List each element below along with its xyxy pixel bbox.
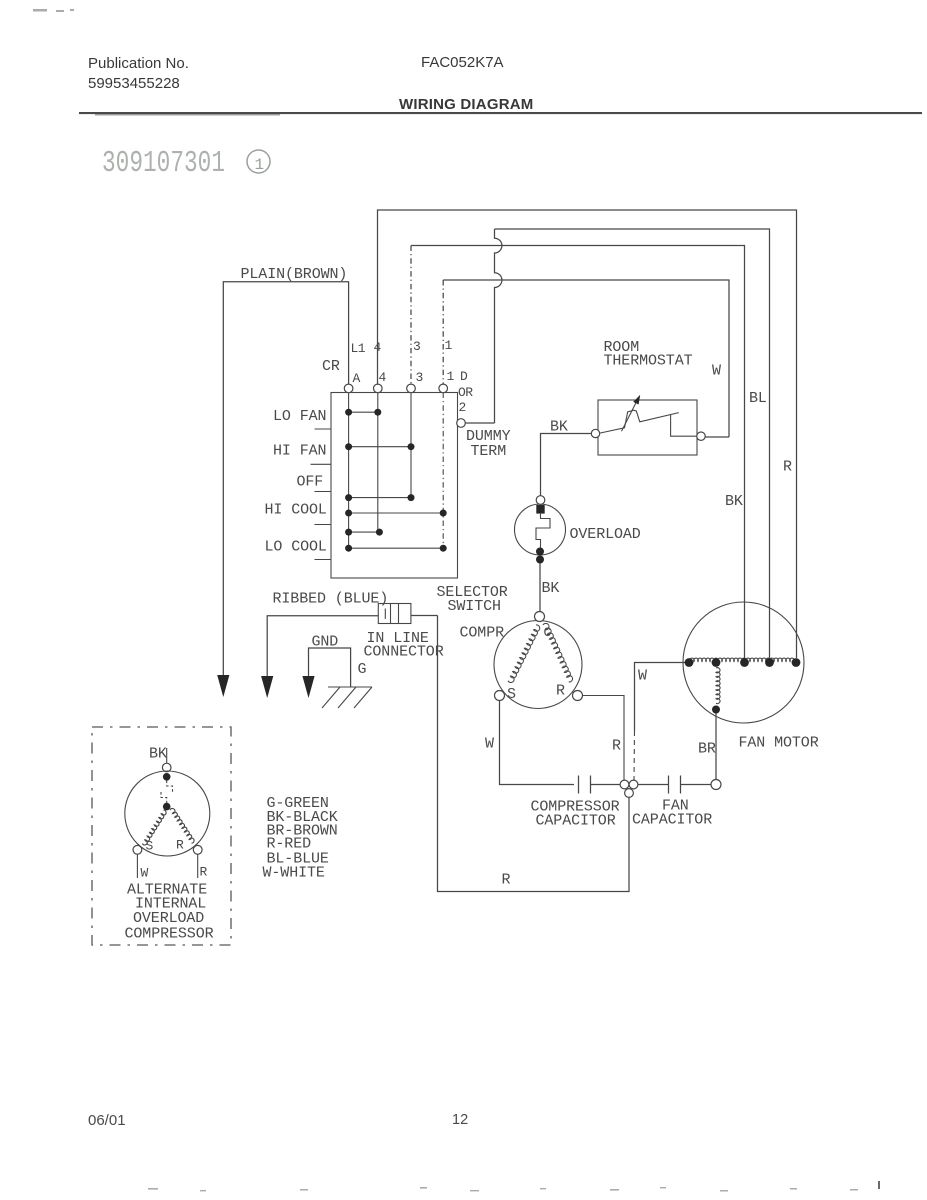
svg-text:COMPR: COMPR [460, 625, 505, 642]
svg-text:W: W [141, 866, 149, 881]
svg-text:OVERLOAD: OVERLOAD [133, 910, 204, 927]
svg-text:FAC052K7A: FAC052K7A [421, 54, 504, 71]
svg-text:12: 12 [452, 1112, 468, 1128]
svg-text:OFF: OFF [297, 474, 324, 491]
svg-text:06/01: 06/01 [88, 1112, 126, 1129]
svg-text:Publication No.: Publication No. [88, 55, 189, 72]
svg-text:PLAIN(BROWN): PLAIN(BROWN) [241, 266, 348, 283]
svg-text:W: W [712, 363, 721, 380]
svg-text:D: D [460, 369, 468, 384]
svg-text:3: 3 [416, 370, 423, 385]
svg-text:COMPRESSOR: COMPRESSOR [125, 926, 214, 943]
svg-text:W: W [485, 736, 494, 753]
svg-text:G: G [358, 661, 367, 678]
svg-text:1: 1 [255, 156, 265, 174]
svg-text:4: 4 [379, 370, 387, 385]
svg-text:3: 3 [413, 339, 420, 354]
svg-text:OVERLOAD: OVERLOAD [570, 526, 641, 543]
svg-text:BK: BK [542, 580, 560, 597]
svg-text:CAPACITOR: CAPACITOR [632, 812, 712, 829]
svg-text:R: R [502, 872, 511, 889]
svg-text:W: W [638, 668, 647, 685]
svg-text:FAN MOTOR: FAN MOTOR [739, 735, 819, 752]
svg-text:W-WHITE: W-WHITE [263, 865, 325, 882]
svg-text:S: S [507, 686, 516, 703]
svg-text:R: R [556, 683, 565, 700]
svg-text:A: A [353, 371, 361, 386]
svg-text:BR: BR [698, 741, 716, 758]
svg-text:BK: BK [725, 493, 743, 510]
svg-text:2: 2 [459, 400, 466, 415]
svg-text:RIBBED (BLUE): RIBBED (BLUE) [273, 591, 389, 608]
svg-text:WIRING DIAGRAM: WIRING DIAGRAM [399, 96, 533, 113]
svg-text:S: S [146, 839, 154, 854]
svg-text:CONNECTOR: CONNECTOR [364, 644, 444, 661]
svg-text:LO COOL: LO COOL [265, 539, 327, 556]
svg-text:1: 1 [447, 369, 455, 384]
svg-text:OR: OR [458, 385, 473, 400]
svg-text:CR: CR [322, 358, 340, 375]
svg-text:BL: BL [749, 390, 767, 407]
svg-text:BK: BK [149, 746, 167, 763]
svg-text:4: 4 [374, 340, 382, 355]
svg-text:L1: L1 [351, 341, 366, 356]
svg-text:HI FAN: HI FAN [273, 443, 326, 460]
svg-text:R: R [783, 459, 792, 476]
svg-text:309107301: 309107301 [102, 146, 225, 181]
svg-text:R: R [200, 865, 208, 880]
svg-text:R: R [176, 838, 184, 853]
svg-text:CAPACITOR: CAPACITOR [536, 813, 616, 830]
svg-text:TERM: TERM [471, 443, 507, 460]
svg-text:LO FAN: LO FAN [273, 408, 326, 425]
svg-text:59953455228: 59953455228 [88, 75, 180, 92]
svg-text:THERMOSTAT: THERMOSTAT [604, 353, 693, 370]
svg-text:R: R [612, 738, 621, 755]
svg-text:SWITCH: SWITCH [448, 598, 501, 615]
svg-text:HI COOL: HI COOL [265, 502, 327, 519]
svg-text:1: 1 [445, 338, 453, 353]
